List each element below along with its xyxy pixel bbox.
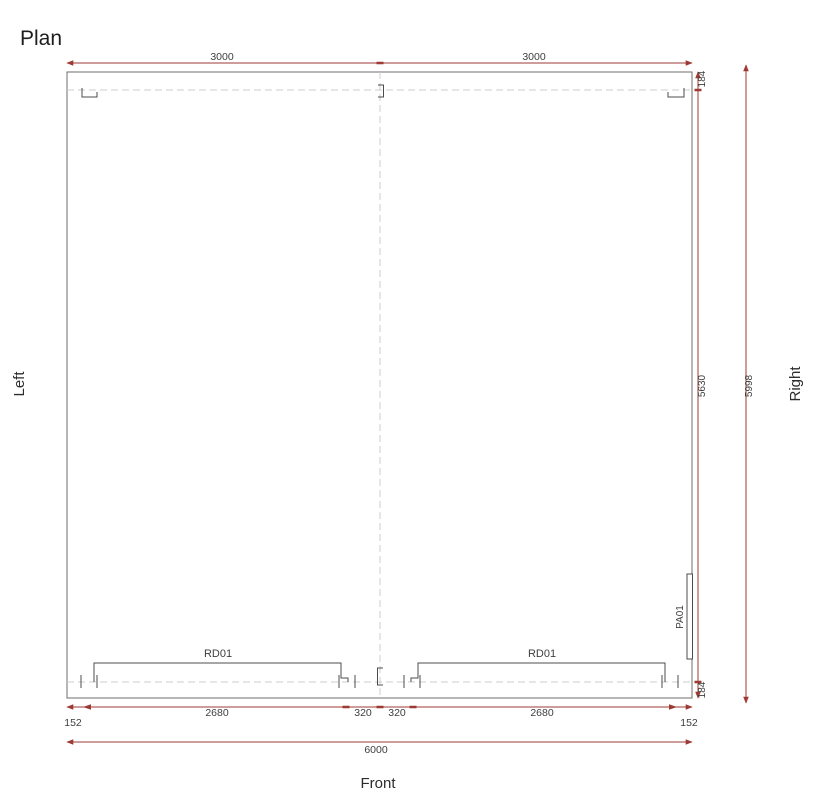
dim-bottom-opening-right: 2680: [530, 707, 554, 719]
dim-bottom-opening-left: 2680: [205, 707, 229, 719]
view-label-right: Right: [787, 366, 804, 402]
dim-right-offset-bottom: 184: [697, 681, 708, 698]
view-label-left: Left: [11, 371, 28, 397]
dim-bottom-total: 6000: [364, 744, 388, 756]
dim-tick: [377, 706, 384, 709]
page-title: Plan: [20, 27, 62, 50]
roller-door-left: [94, 663, 348, 682]
dim-tick: [343, 706, 350, 709]
dim-tick: [377, 62, 384, 65]
column-marker-top-right: [668, 88, 684, 97]
plan-drawing-sheet: Plan RD01 RD01 PA01 3000 3000 152 2680 3…: [0, 0, 822, 802]
dim-right-span: 5630: [697, 374, 708, 397]
view-label-front: Front: [360, 775, 396, 792]
roller-door-left-label: RD01: [204, 648, 232, 660]
column-marker-top-left: [82, 88, 97, 97]
dim-tick: [695, 89, 702, 92]
dim-top-right: 3000: [522, 51, 546, 63]
dim-right-total: 5998: [744, 374, 755, 397]
dim-arrow: [669, 704, 677, 710]
plan-drawing: Plan RD01 RD01 PA01 3000 3000 152 2680 3…: [0, 0, 822, 802]
dim-bottom-center-right: 320: [388, 707, 406, 719]
dim-tick: [410, 706, 417, 709]
dim-bottom-margin-right: 152: [680, 717, 698, 729]
dim-arrow: [83, 704, 91, 710]
dim-bottom-center-left: 320: [354, 707, 372, 719]
roller-door-right: [411, 663, 665, 682]
dim-top-left: 3000: [210, 51, 234, 63]
panel-pa01: [687, 574, 693, 659]
column-marker-top-center: [378, 85, 384, 97]
panel-pa01-label: PA01: [675, 605, 686, 629]
dim-right-offset-top: 184: [697, 70, 708, 87]
dim-bottom-margin-left: 152: [64, 717, 82, 729]
roller-door-right-label: RD01: [528, 648, 556, 660]
